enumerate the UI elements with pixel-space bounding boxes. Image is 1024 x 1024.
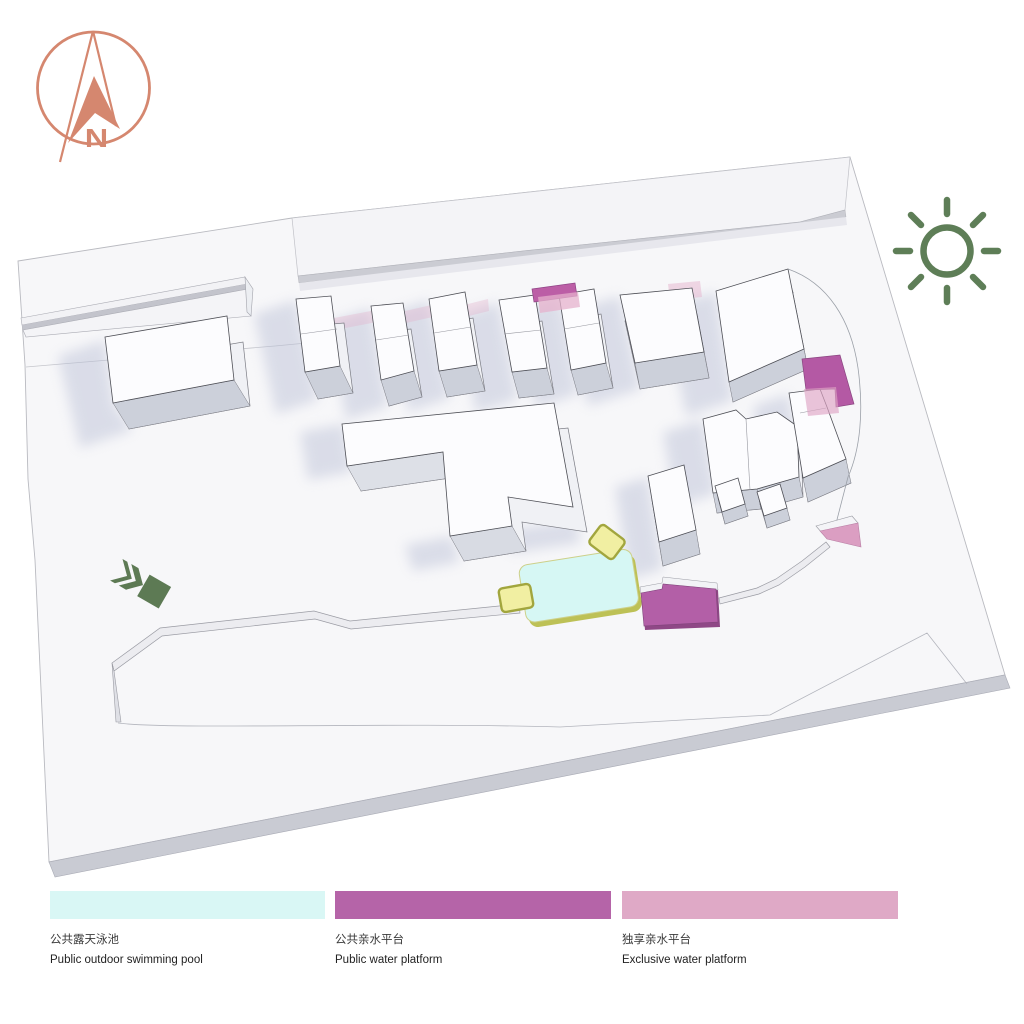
svg-text:公共露天泳池: 公共露天泳池 [50, 932, 119, 946]
svg-text:N: N [85, 124, 108, 153]
svg-text:Public water platform: Public water platform [335, 954, 442, 966]
svg-text:独享亲水平台: 独享亲水平台 [622, 932, 691, 946]
svg-text:公共亲水平台: 公共亲水平台 [335, 932, 404, 946]
svg-text:Public outdoor swimming pool: Public outdoor swimming pool [50, 954, 203, 966]
svg-text:Exclusive water platform: Exclusive water platform [622, 954, 747, 966]
